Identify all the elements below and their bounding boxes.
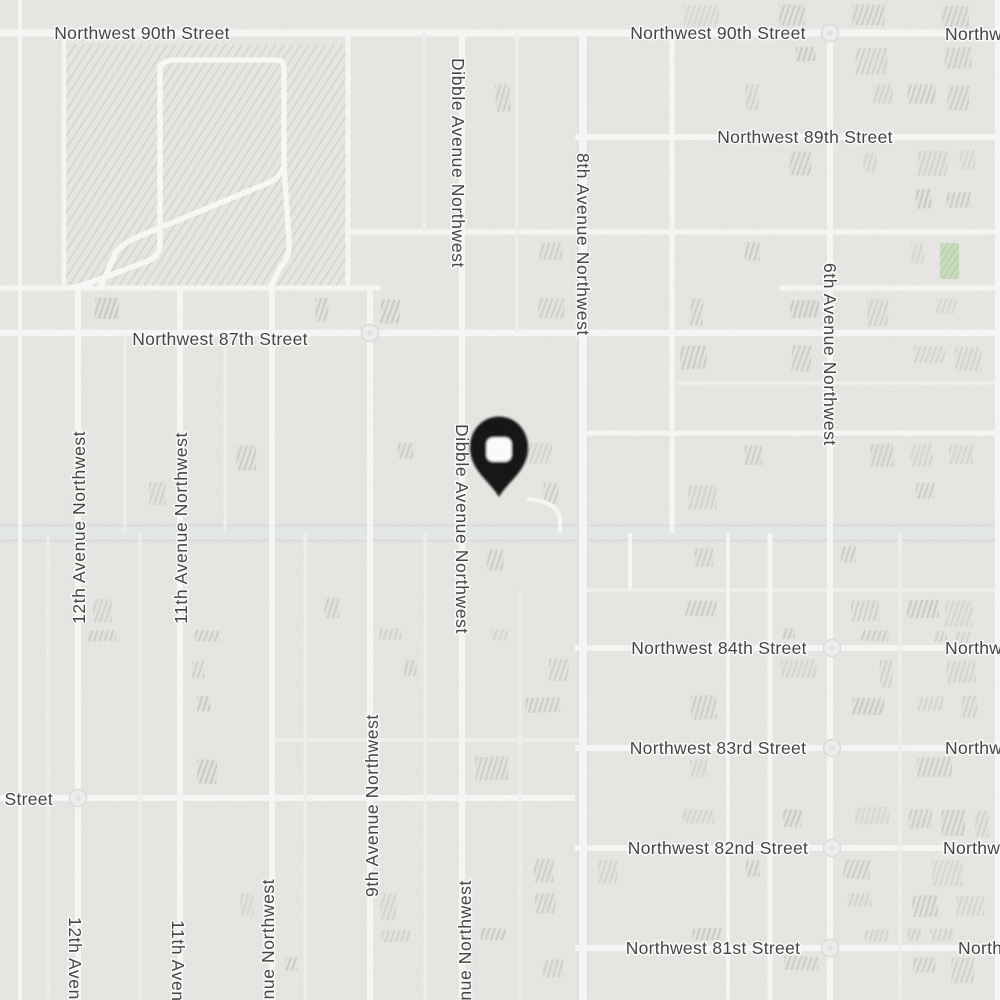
building [481,928,506,941]
pin-hole [487,438,512,462]
building [851,600,880,622]
building [685,601,716,617]
street-label-nw81: Northwest 81st Street [626,938,801,958]
roundabout-center [829,845,835,851]
building [913,957,935,972]
building [690,759,707,777]
building [534,859,554,882]
roundabout [824,740,841,757]
building [932,860,963,886]
street-label-nw90-right: Northwest 90th Street [630,23,806,43]
building [975,811,989,838]
building [962,696,978,718]
building [745,84,759,110]
park-area [62,44,346,290]
building [911,244,924,264]
building [910,444,933,468]
building [855,807,890,825]
building [841,546,856,563]
roundabout [70,790,87,807]
building [848,893,872,906]
street-label-nw89: Northwest 89th Street [717,127,893,147]
building [691,695,717,720]
building [951,958,974,984]
building [197,696,211,711]
building [870,443,893,467]
building [690,298,703,325]
street-label-nw83: Northwest 83rd Street [630,738,807,758]
roundabout [824,840,841,857]
building [525,697,560,713]
building [236,446,256,471]
building [843,859,870,880]
roundabout-center [827,30,833,36]
building [917,696,944,710]
street-label-nw82: Northwest 82nd Street [628,838,808,858]
building [380,893,396,920]
building [791,345,811,372]
building [946,192,971,208]
building [680,345,707,369]
roundabout-center [827,945,833,951]
building [852,4,884,26]
avenue-label-6th: 6th Avenue Northwest [820,263,840,446]
building [539,242,562,260]
building [95,298,119,319]
building [959,150,975,170]
roundabout-center [829,745,835,751]
street-label-nw84-edge: Northwest 84th Street [945,638,1000,658]
building [746,860,760,876]
roundabout [824,640,841,657]
street-label-nw90-edge: Northwest 90th Street [945,24,1000,44]
green-space [940,243,959,279]
building [535,893,556,913]
building [694,548,713,567]
building [908,929,922,941]
building [781,659,817,678]
roundabout [822,940,839,957]
map-canvas[interactable]: Northwest 90th Street Northwest 90th Str… [0,0,1000,1000]
street-label-nw90-left: Northwest 90th Street [54,23,230,43]
building [789,151,811,175]
building [379,628,402,640]
building [192,661,204,679]
building [907,600,939,619]
building [538,298,565,319]
avenue-label-10th-fragment: 10th Avenue Northwest [258,879,278,1000]
street-label-nw87: Northwest 87th Street [132,329,308,349]
roundabout [362,325,379,342]
street-label-nw83-edge: Northwest 83rd Street [945,738,1000,758]
building [404,660,417,677]
building [945,601,973,628]
building [917,757,952,777]
building [955,347,981,371]
roundabout-center [367,330,373,336]
building [240,893,254,915]
building [744,445,762,465]
street-label-nw81-edge: Northwest 81st Street [958,938,1000,958]
building [682,809,714,824]
building [949,445,973,465]
avenue-label-dibble-bottom-fragment: Dibble Avenue Northwest [455,880,475,1000]
building [688,485,717,510]
street-label-nw84: Northwest 84th Street [631,638,807,658]
building [946,660,976,683]
building [918,151,948,176]
building [315,298,328,321]
avenue-label-dibble-top: Dibble Avenue Northwest [448,58,468,268]
building [852,698,884,716]
roundabout-center [75,795,81,801]
building [948,86,970,111]
building [873,85,892,104]
building [856,48,888,75]
building [598,860,618,884]
avenue-label-12th: 12th Avenue Northwest [69,431,89,624]
roundabout-center [829,645,835,651]
building [936,299,957,314]
building [880,660,893,687]
building [865,929,889,941]
avenue-label-dibble-mid: Dibble Avenue Northwest [452,424,472,634]
building [930,929,953,941]
building [863,153,877,172]
street-label-left-fragment: Street [5,789,54,809]
building [912,895,938,917]
avenue-label-8th: 8th Avenue Northwest [573,153,593,336]
building [149,482,166,505]
building [913,346,945,364]
street-label-nw82-edge: Northwest 82nd Street [943,838,1000,858]
building [908,809,932,829]
building [491,630,508,641]
building [744,242,760,261]
building [381,930,410,942]
building [867,299,888,326]
building [907,84,935,103]
building [915,189,931,209]
roundabout [822,25,839,42]
avenue-label-11th: 11th Avenue Northwest [171,432,191,624]
building [197,759,218,784]
building [916,483,935,499]
building [944,47,972,69]
building [88,630,116,641]
avenue-label-9th: 9th Avenue Northwest [362,714,382,897]
green-space-hatch [940,243,959,279]
building [796,47,815,62]
building [526,443,552,464]
building [956,896,984,915]
building [475,756,508,781]
building [194,630,220,642]
building [549,659,569,681]
building [487,550,504,571]
building [543,959,564,978]
building [397,443,413,459]
building [783,809,802,827]
avenue-label-11th-bottom: 11th Avenue Northwest [168,920,188,1000]
building [495,84,511,111]
building [285,957,297,970]
building [324,598,339,619]
building [93,599,112,622]
park-hatch-texture [62,44,346,290]
avenue-label-12th-bottom: 12th Avenue Northwest [65,917,85,1000]
building [941,810,965,837]
building [380,299,400,323]
building [860,630,889,642]
building [790,300,820,319]
